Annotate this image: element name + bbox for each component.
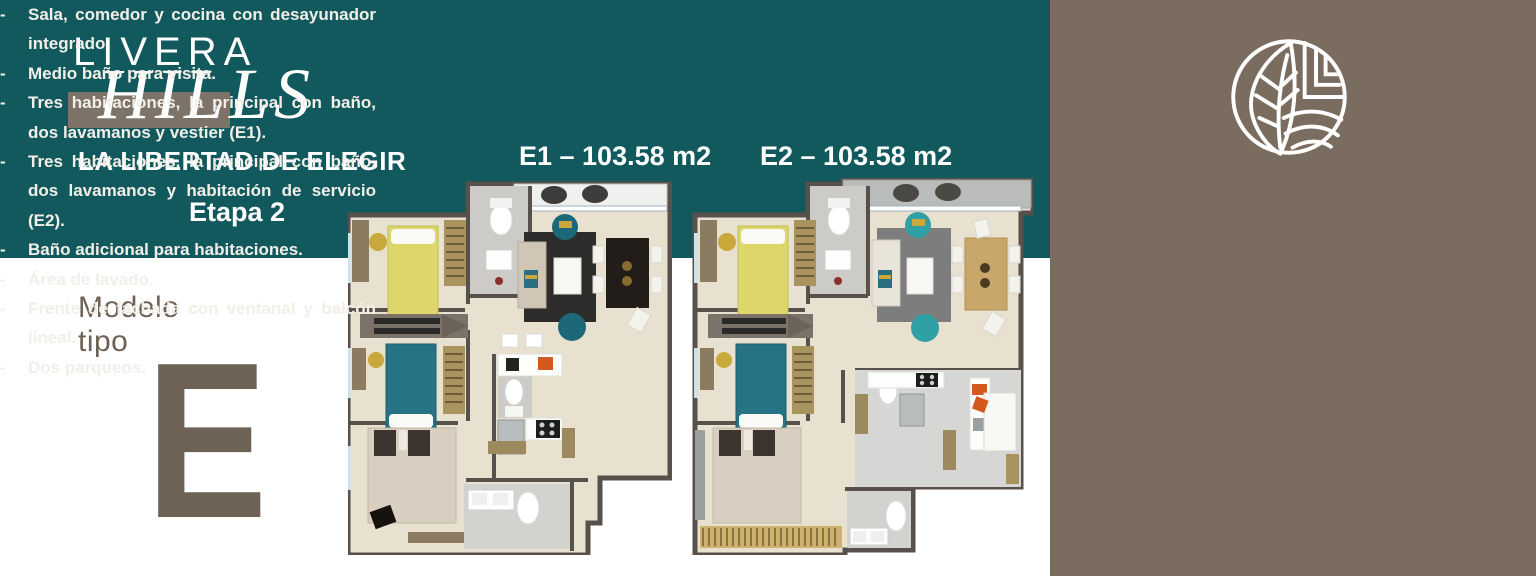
bullet-dash: - bbox=[0, 59, 6, 88]
bullet-dash: - bbox=[0, 294, 6, 323]
floorplan-e2 bbox=[688, 178, 1033, 555]
e2-main-bath bbox=[847, 491, 911, 548]
bullet-dash: - bbox=[0, 147, 6, 176]
e2-dining-table bbox=[965, 238, 1007, 310]
feature-item: -Medio baño para visita. bbox=[0, 59, 376, 88]
e1-window-band bbox=[514, 206, 667, 211]
feature-item: -Sala, comedor y cocina con desayunador … bbox=[0, 0, 376, 59]
e1-coffee-table bbox=[554, 258, 581, 294]
floorplan-e1 bbox=[348, 178, 672, 555]
e2-service-room-bed bbox=[984, 393, 1016, 451]
feature-list: -Sala, comedor y cocina con desayunador … bbox=[0, 0, 376, 382]
plan-e2-label: E2 – 103.58 m2 bbox=[760, 141, 952, 172]
feature-item: -Baño adicional para habitaciones. bbox=[0, 235, 376, 264]
e2-coffee-table bbox=[907, 258, 933, 294]
bullet-dash: - bbox=[0, 0, 6, 29]
flyer-canvas: LIVERA HILLS LA LIBERTAD DE ELEGIR Etapa… bbox=[0, 0, 1536, 576]
plan-e1-label: E1 – 103.58 m2 bbox=[519, 141, 711, 172]
bullet-dash: - bbox=[0, 265, 6, 294]
bullet-dash: - bbox=[0, 235, 6, 264]
bullet-dash: - bbox=[0, 88, 6, 117]
e1-tv-console bbox=[360, 314, 468, 338]
feature-item: -Tres habitaciones, la principal con bañ… bbox=[0, 147, 376, 235]
e2-kitchen bbox=[855, 370, 1021, 487]
feature-item: -Área de lavado. bbox=[0, 265, 376, 294]
e1-main-bath bbox=[464, 484, 570, 549]
feature-item: -Tres habitaciones, la principal con bañ… bbox=[0, 88, 376, 147]
bullet-dash: - bbox=[0, 353, 6, 382]
e1-dining-table bbox=[606, 238, 649, 308]
leaf-circle-logo bbox=[1228, 36, 1350, 158]
feature-item: -Dos parqueos. bbox=[0, 353, 376, 382]
feature-item: -Frente de fachada con ventanal y balcón… bbox=[0, 294, 376, 353]
e2-tv-console bbox=[708, 314, 813, 338]
